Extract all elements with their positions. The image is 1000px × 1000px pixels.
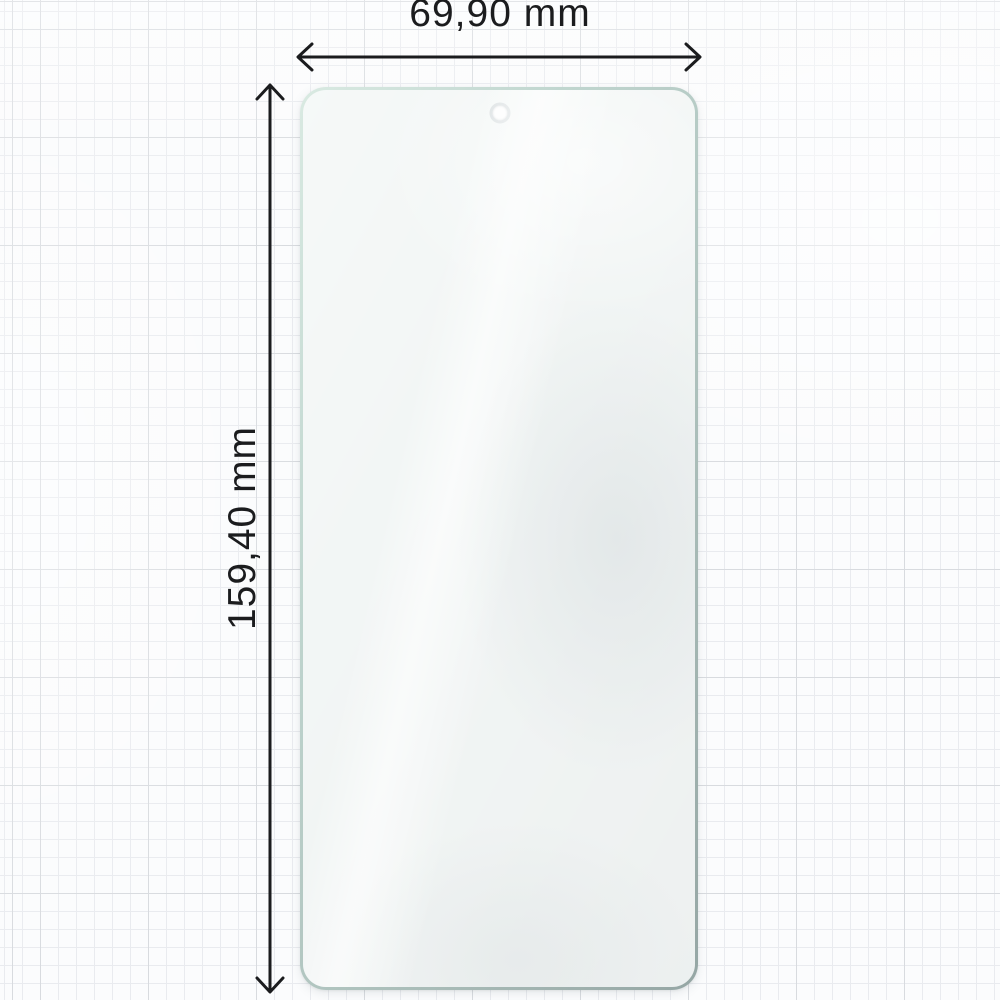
width-dimension-arrow — [298, 44, 700, 70]
dimension-arrows-layer — [0, 0, 1000, 1000]
width-dimension-label: 69,90 mm — [298, 0, 702, 35]
dimension-diagram: 69,90 mm 159,40 mm — [0, 0, 1000, 1000]
height-dimension-label: 159,40 mm — [222, 426, 264, 630]
